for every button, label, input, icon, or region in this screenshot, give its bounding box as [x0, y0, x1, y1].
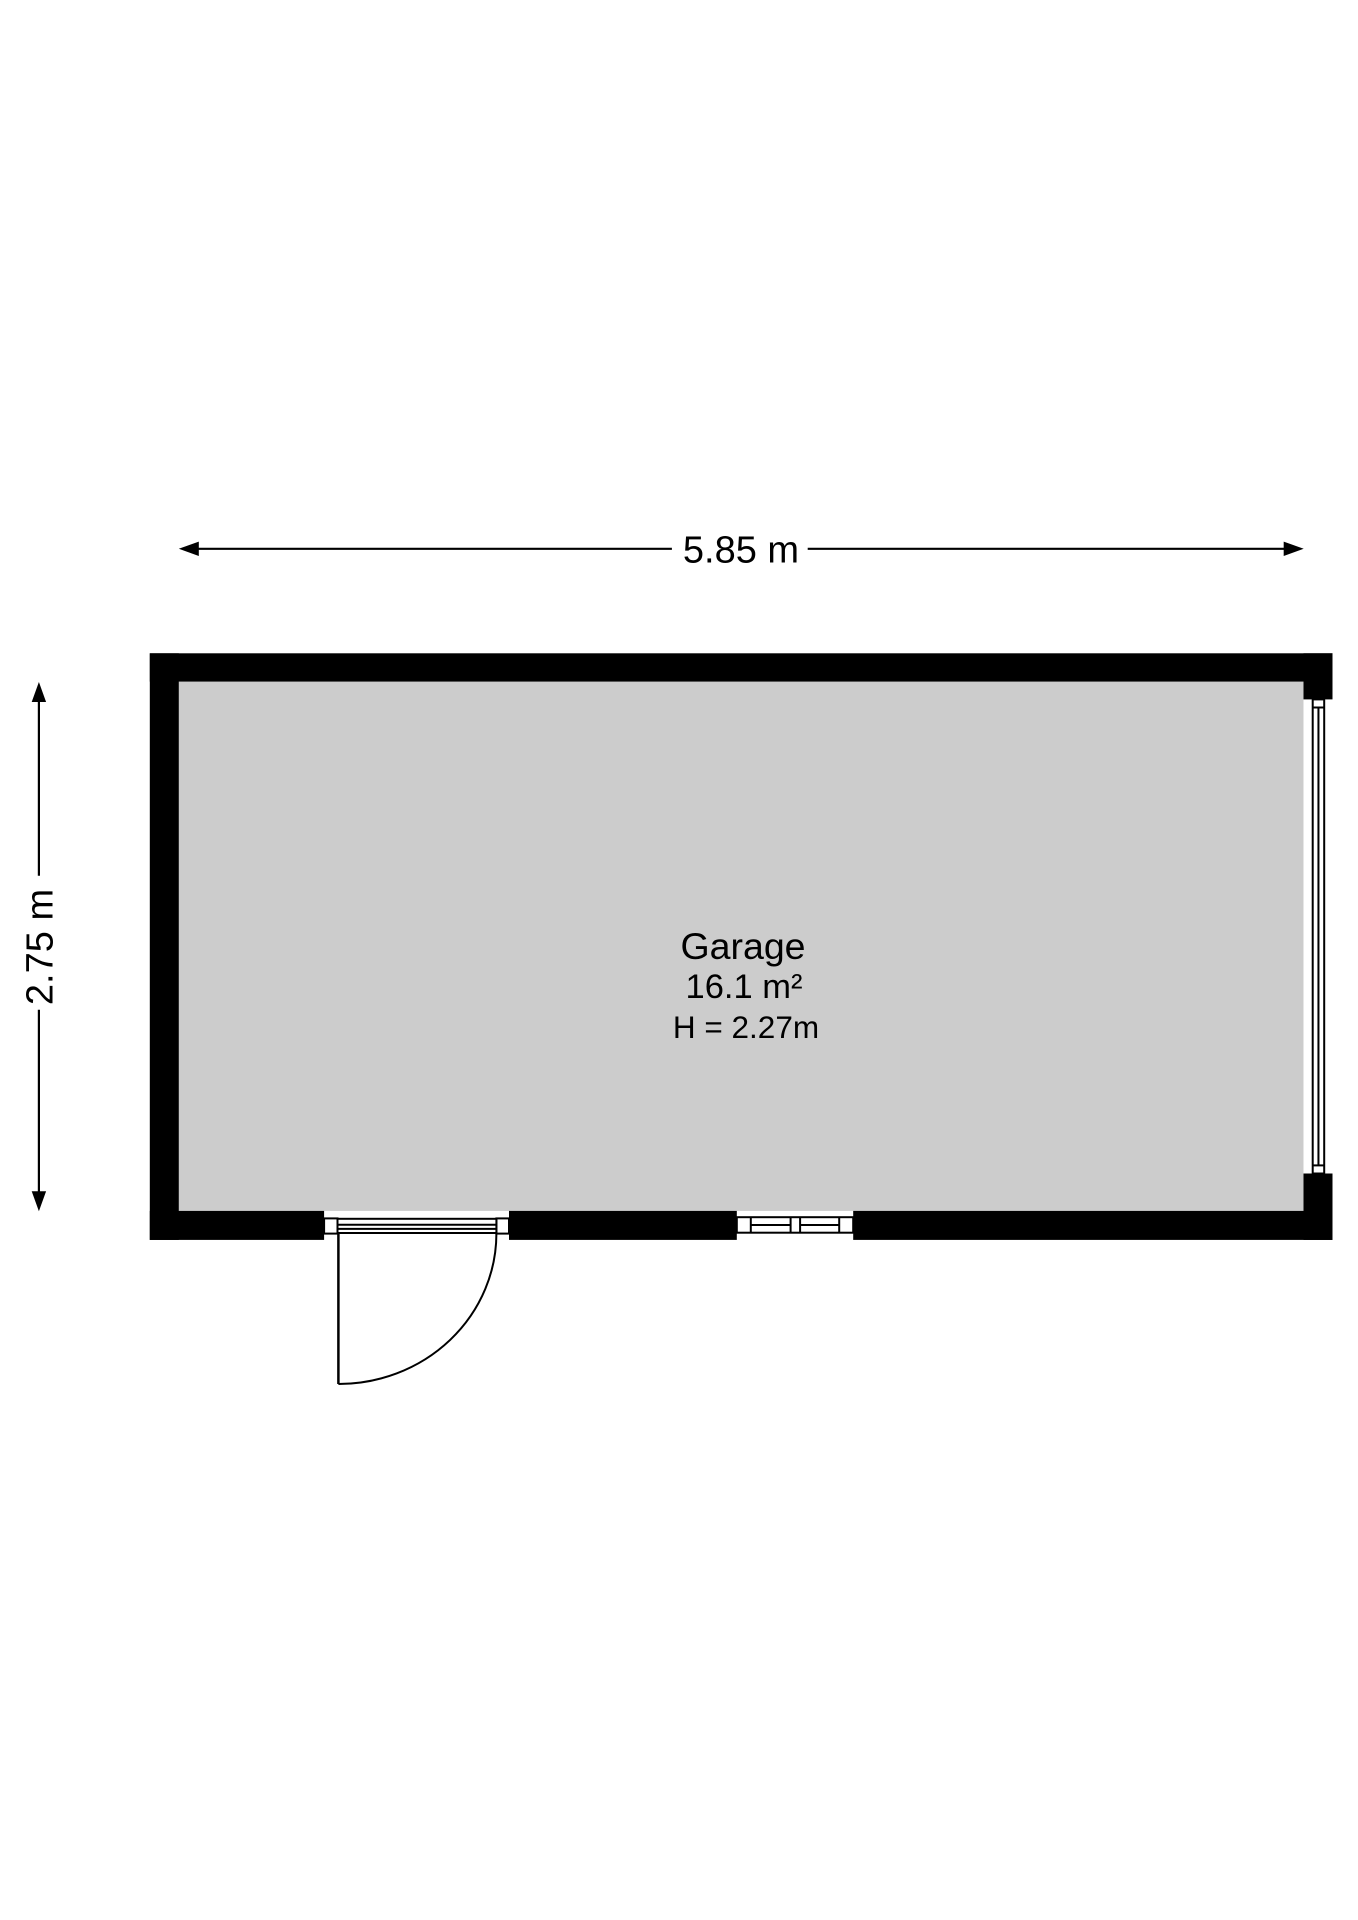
svg-text:Garage: Garage — [680, 925, 805, 967]
svg-text:16.1 m²: 16.1 m² — [686, 968, 803, 1006]
svg-text:5.85 m: 5.85 m — [683, 530, 799, 572]
svg-text:2.75 m: 2.75 m — [20, 889, 62, 1005]
svg-text:H = 2.27m: H = 2.27m — [673, 1009, 819, 1045]
